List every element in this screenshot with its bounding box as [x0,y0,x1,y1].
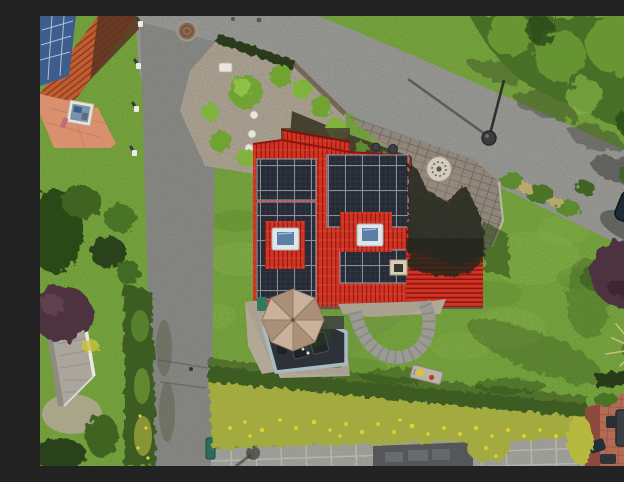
aerial-photo-canvas [40,16,624,466]
solar-array [257,159,316,200]
green-barrel [257,297,267,311]
roof-skylight [272,228,299,250]
stone-mosaic-ornament [427,157,452,182]
bird-speck [189,367,193,371]
dark-paver-patch [373,442,473,466]
manhole-cover [177,21,198,42]
sandbox [66,100,93,126]
chimney [390,260,407,275]
hedge-left [124,284,156,466]
aerial-photo: Aerial drone view of a detached house wi… [40,16,624,466]
roof-vent [389,145,398,154]
yellow-bush [567,416,593,464]
roof-skylight [357,224,383,246]
roof-vent [372,143,380,151]
